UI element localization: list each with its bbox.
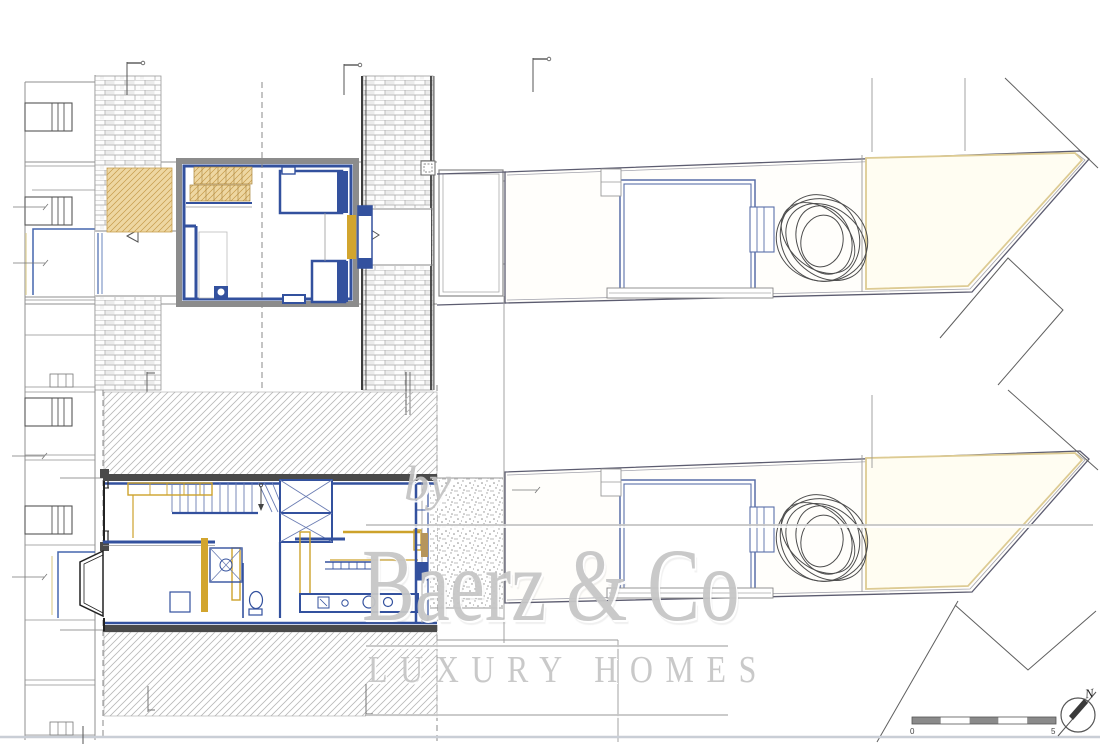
roof-terrace-hatch bbox=[107, 168, 172, 232]
rear-door bbox=[421, 533, 428, 557]
sheet-frame bbox=[0, 726, 1100, 744]
north-arrow: N bbox=[1058, 685, 1096, 736]
rear-extension-roof bbox=[439, 170, 503, 296]
garden-plot-plan bbox=[505, 151, 1089, 303]
plot-boundary bbox=[437, 303, 506, 305]
scale-start-label: 0 bbox=[910, 727, 915, 736]
party-wall-top bbox=[103, 474, 437, 481]
door-strip-mustard bbox=[347, 215, 356, 259]
adjacent-building-upper bbox=[13, 75, 95, 390]
section-flag bbox=[127, 57, 551, 95]
chimney-block bbox=[25, 197, 72, 225]
skylight-symbol bbox=[421, 161, 435, 175]
compass-label: N bbox=[1083, 685, 1096, 701]
chimney-block bbox=[25, 506, 72, 534]
party-wall-hatch-bottom bbox=[104, 632, 437, 716]
roof-band-left bbox=[95, 76, 178, 390]
mustard-strip bbox=[201, 538, 208, 612]
garden-annex bbox=[750, 207, 774, 252]
rear-garden-zone bbox=[866, 153, 1082, 289]
scale-bar: 0 5 bbox=[910, 717, 1056, 736]
plan-sheet: 0 5 N by Baerz & Co LUXURY HOMES bbox=[0, 0, 1100, 744]
garden-room bbox=[620, 180, 755, 296]
terrace-edge bbox=[607, 288, 773, 298]
wardrobe bbox=[280, 480, 332, 542]
party-wall-bottom bbox=[103, 625, 437, 632]
chimney-block bbox=[25, 398, 72, 426]
stairs-upper bbox=[186, 167, 252, 207]
ground-floor-plan bbox=[12, 385, 540, 742]
party-wall-hatch-top bbox=[104, 392, 437, 478]
scale-end-label: 5 bbox=[1051, 727, 1056, 736]
compass-needle bbox=[1069, 699, 1088, 720]
upper-floor-plan bbox=[13, 57, 551, 415]
chimney-block bbox=[25, 103, 72, 131]
roof-band-right bbox=[362, 76, 434, 390]
upper-room bbox=[176, 158, 359, 307]
garden-step bbox=[601, 169, 621, 196]
ground-floor-house bbox=[80, 469, 437, 632]
floor-plan-drawing: 0 5 N bbox=[0, 0, 1100, 744]
dormer-window bbox=[358, 206, 372, 268]
